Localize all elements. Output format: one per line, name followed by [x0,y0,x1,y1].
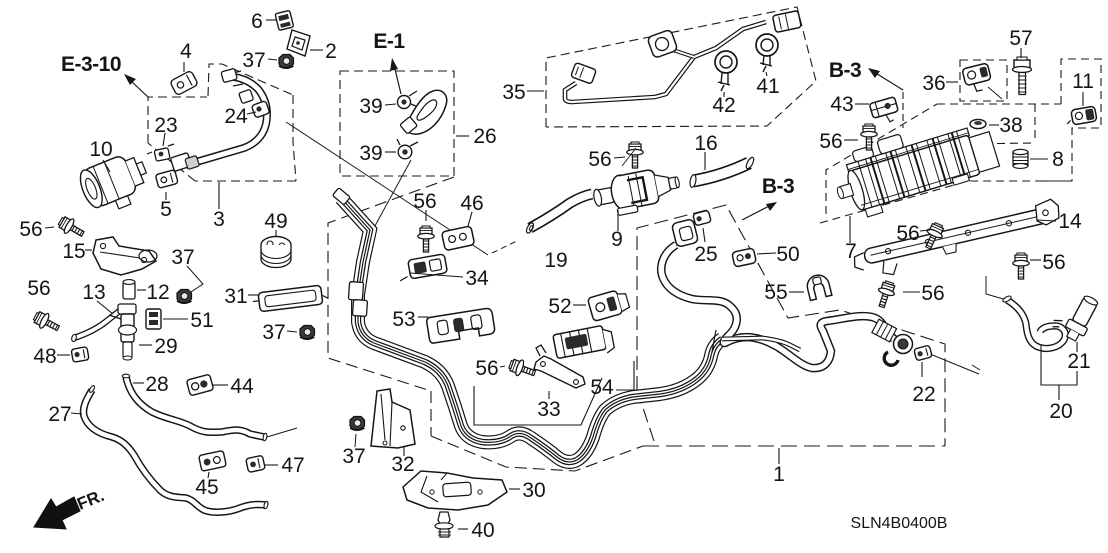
svg-text:B-3: B-3 [829,59,861,82]
svg-text:12: 12 [146,281,169,304]
svg-text:24: 24 [224,105,248,128]
svg-text:31: 31 [224,285,247,308]
svg-text:15: 15 [62,240,85,263]
svg-text:56: 56 [819,130,842,153]
svg-text:27: 27 [48,403,71,426]
svg-text:39: 39 [359,142,382,165]
svg-text:29: 29 [154,335,177,358]
svg-text:42: 42 [712,94,735,117]
svg-text:21: 21 [1067,350,1090,373]
svg-text:56: 56 [921,282,944,305]
svg-text:7: 7 [845,240,857,263]
svg-text:55: 55 [764,281,787,304]
svg-text:26: 26 [473,125,496,148]
svg-text:56: 56 [19,218,42,241]
svg-text:56: 56 [588,148,611,171]
svg-text:41: 41 [756,75,779,98]
svg-text:1: 1 [773,463,785,486]
svg-text:43: 43 [830,93,853,116]
svg-text:14: 14 [1058,210,1082,233]
svg-text:32: 32 [391,453,414,476]
svg-text:46: 46 [460,192,483,215]
svg-text:8: 8 [1052,148,1064,171]
svg-text:SLN4B0400B: SLN4B0400B [851,515,948,532]
svg-text:49: 49 [264,210,287,233]
svg-text:23: 23 [154,114,177,137]
svg-text:38: 38 [999,114,1022,137]
svg-text:2: 2 [325,40,337,63]
svg-text:54: 54 [590,376,614,399]
svg-text:56: 56 [896,222,919,245]
svg-text:40: 40 [471,519,494,542]
svg-text:35: 35 [502,81,525,104]
svg-text:52: 52 [548,295,571,318]
svg-text:6: 6 [251,10,263,33]
svg-text:34: 34 [465,267,489,290]
svg-text:56: 56 [27,277,50,300]
svg-text:37: 37 [342,445,365,468]
svg-text:28: 28 [145,373,168,396]
svg-text:33: 33 [537,398,560,421]
svg-text:44: 44 [230,375,254,398]
svg-text:22: 22 [912,383,935,406]
svg-text:3: 3 [213,208,225,231]
svg-text:56: 56 [1042,251,1065,274]
svg-text:10: 10 [89,138,112,161]
svg-text:37: 37 [262,321,285,344]
svg-text:48: 48 [33,345,56,368]
svg-text:16: 16 [694,132,717,155]
svg-text:37: 37 [171,246,194,269]
svg-text:56: 56 [413,190,436,213]
svg-text:47: 47 [281,454,304,477]
svg-text:5: 5 [160,198,172,221]
svg-text:20: 20 [1049,400,1072,423]
svg-text:9: 9 [611,228,623,251]
svg-text:36: 36 [922,72,945,95]
svg-text:19: 19 [544,249,567,272]
svg-text:4: 4 [180,40,192,63]
svg-text:B-3: B-3 [762,175,794,198]
svg-text:E-1: E-1 [373,30,405,53]
svg-text:E-3-10: E-3-10 [61,53,121,76]
svg-text:37: 37 [242,49,265,72]
svg-text:50: 50 [776,243,799,266]
svg-text:51: 51 [190,309,213,332]
svg-text:30: 30 [522,479,545,502]
svg-text:25: 25 [694,243,717,266]
svg-text:57: 57 [1009,27,1032,50]
svg-text:53: 53 [392,308,415,331]
svg-text:13: 13 [82,281,105,304]
svg-text:11: 11 [1072,70,1094,93]
svg-text:56: 56 [475,357,498,380]
svg-text:39: 39 [359,95,382,118]
svg-text:45: 45 [195,476,218,499]
